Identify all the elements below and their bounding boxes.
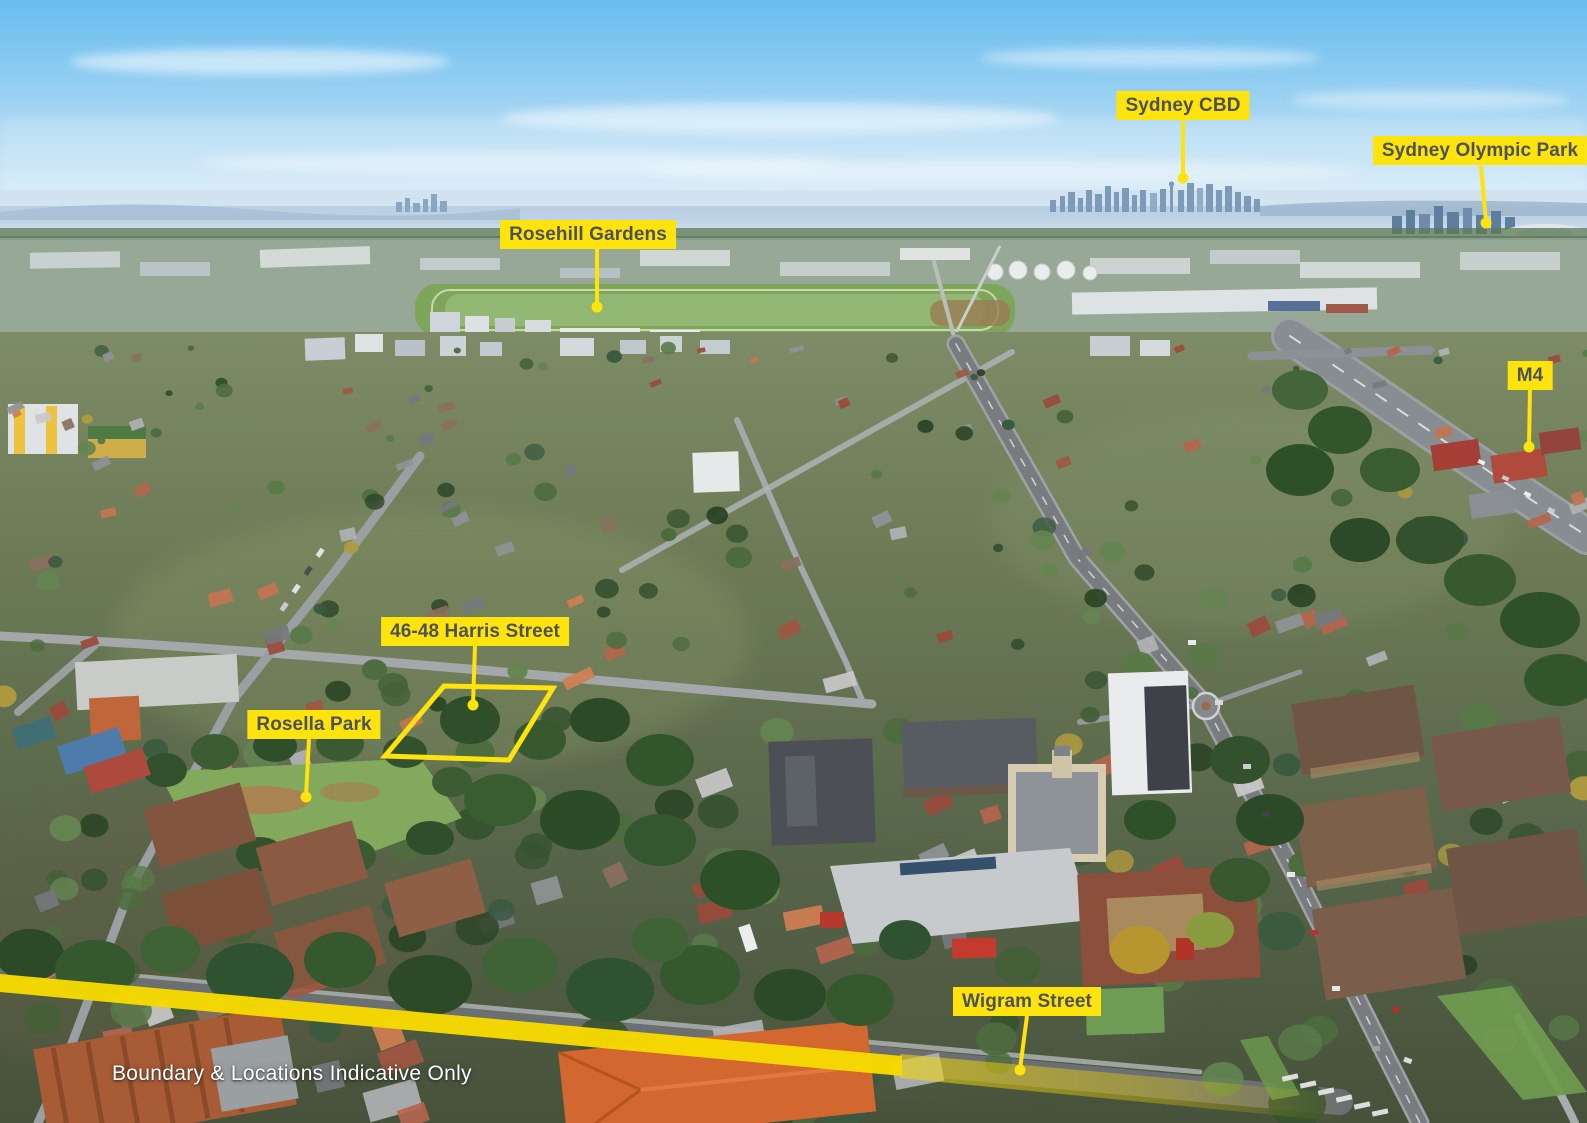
aerial-photo-art — [0, 0, 1587, 1123]
label-m4: M4 — [1508, 361, 1553, 390]
label-wigram-street: Wigram Street — [953, 987, 1101, 1016]
label-rosehill-gardens: Rosehill Gardens — [500, 220, 676, 249]
industrial-band — [0, 240, 1587, 346]
label-sydney-cbd: Sydney CBD — [1116, 91, 1249, 120]
disclaimer-text: Boundary & Locations Indicative Only — [112, 1062, 472, 1086]
label-sydney-olympic-park: Sydney Olympic Park — [1373, 136, 1587, 165]
label-harris-street: 46-48 Harris Street — [381, 617, 569, 646]
label-rosella-park: Rosella Park — [247, 710, 380, 739]
racecourse — [415, 284, 1015, 340]
aerial-photo: Sydney CBD Sydney Olympic Park Rosehill … — [0, 0, 1587, 1123]
